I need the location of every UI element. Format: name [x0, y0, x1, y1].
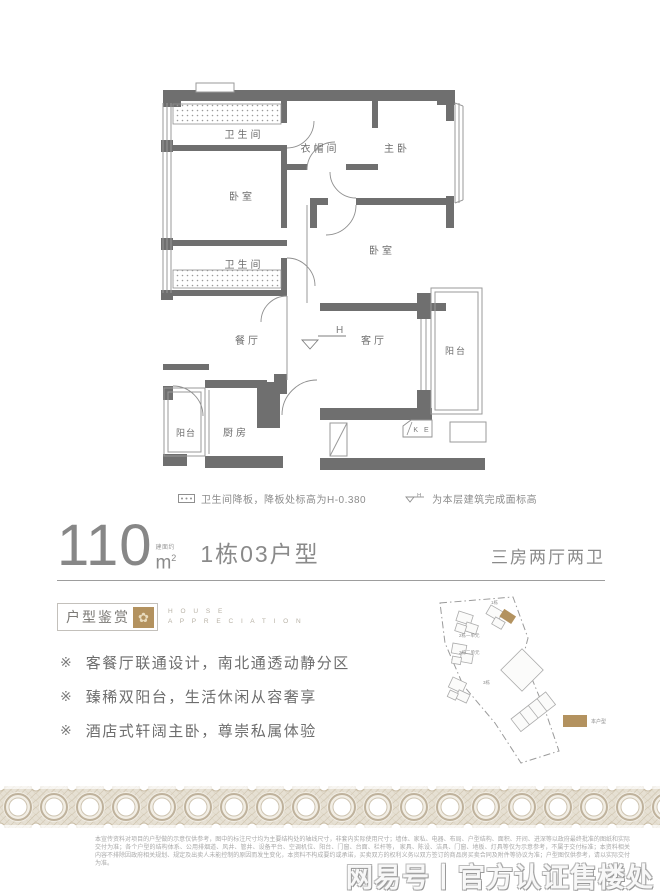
page: K E H 卫生间 卧室 卫生间 衣帽间 主卧 卧室 餐厅 客厅 阳台 阳台 厨…: [0, 0, 660, 894]
site-legend: 本户型: [563, 715, 606, 727]
area-note: 建面约: [155, 542, 175, 551]
site-legend-label: 本户型: [591, 718, 606, 725]
room-label-bath2: 卫生间: [225, 258, 264, 271]
room-label-living: 客厅: [361, 334, 387, 347]
ac-unit-box: K E: [403, 420, 432, 437]
appreciation-en-line2: A P P R E C I A T I O N: [168, 617, 304, 627]
bullet-marker-icon: ※: [60, 688, 72, 705]
room-label-master: 主卧: [384, 142, 410, 155]
bullet-marker-icon: ※: [60, 722, 72, 739]
title-row: 110 建面约 m2 1栋03户型 三房两厅两卫: [57, 520, 605, 572]
bullet-text: 酒店式轩阔主卧，尊崇私属体验: [86, 720, 317, 741]
watermark: 网易号丨官方认证售楼处: [346, 856, 654, 894]
room-label-bed-left: 卧室: [229, 190, 255, 203]
room-label-kitchen: 厨房: [223, 426, 249, 439]
feature-bullet: ※ 酒店式轩阔主卧，尊崇私属体验: [60, 720, 350, 741]
ornament-icon: ✿: [133, 607, 154, 628]
site-label-b3: 3栋: [483, 679, 491, 686]
area-unit-group: 建面约 m2: [155, 542, 176, 570]
appreciation-en: H O U S E A P P R E C I A T I O N: [168, 607, 304, 627]
site-label-b2u2: 2栋二单元: [459, 649, 480, 656]
unit-name: 1栋03户型: [200, 535, 319, 569]
area-sup: 2: [171, 553, 176, 563]
level-triangle-icon: H: [404, 493, 426, 505]
area-number: 110: [57, 520, 152, 572]
appreciation-label: 户型鉴赏: [66, 607, 133, 627]
drop-legend-text: 卫生间降板，降板处标高为H-0.380: [201, 491, 366, 506]
bullet-marker-icon: ※: [60, 654, 72, 671]
ac-box-label: K E: [413, 427, 430, 434]
room-label-bath1: 卫生间: [225, 128, 264, 141]
feature-bullet: ※ 客餐厅联通设计，南北通透动静分区: [60, 652, 350, 673]
site-buildings: [445, 605, 556, 732]
title-divider: [57, 580, 605, 581]
layout-desc: 三房两厅两卫: [491, 543, 605, 568]
area-unit: m: [155, 552, 171, 573]
bullet-text: 臻稀双阳台，生活休闲从容奢享: [86, 686, 317, 707]
room-label-dining: 餐厅: [235, 334, 261, 347]
windows-layer: [163, 83, 486, 456]
floorplan-drawing: K E H 卫生间 卧室 卫生间 衣帽间 主卧 卧室 餐厅 客厅 阳台 阳台 厨…: [150, 78, 510, 488]
feature-bullets: ※ 客餐厅联通设计，南北通透动静分区 ※ 臻稀双阳台，生活休闲从容奢享 ※ 酒店…: [60, 652, 350, 754]
h-marker-label: H: [336, 325, 343, 336]
level-legend-text: 为本层建筑完成面标高: [432, 491, 537, 506]
siteplan-drawing: 1栋 2栋一单元 2栋二单元 3栋 本户型: [425, 593, 655, 773]
h-level-marker: H: [302, 325, 346, 349]
plan-legend: 卫生间降板，降板处标高为H-0.380 H 为本层建筑完成面标高: [178, 491, 537, 506]
level-h-symbol: H: [417, 493, 422, 499]
bullet-text: 客餐厅联通设计，南北通透动静分区: [86, 652, 350, 673]
room-label-balcony-right: 阳台: [445, 345, 467, 356]
doors-layer: [173, 121, 356, 416]
site-legend-swatch: [563, 715, 587, 727]
drop-hatch-icon: [178, 494, 195, 503]
site-label-b2u1: 2栋一单元: [459, 632, 480, 639]
room-label-bed-right: 卧室: [369, 244, 395, 257]
site-label-b1: 1栋: [491, 599, 499, 606]
room-label-cloak: 衣帽间: [301, 142, 340, 155]
room-label-balcony-left: 阳台: [176, 427, 196, 438]
feature-bullet: ※ 臻稀双阳台，生活休闲从容奢享: [60, 686, 350, 707]
appreciation-box: 户型鉴赏 ✿: [57, 603, 158, 631]
decorative-band: [0, 786, 660, 828]
appreciation-en-line1: H O U S E: [168, 607, 304, 617]
ornament-glyph: ✿: [133, 608, 154, 627]
